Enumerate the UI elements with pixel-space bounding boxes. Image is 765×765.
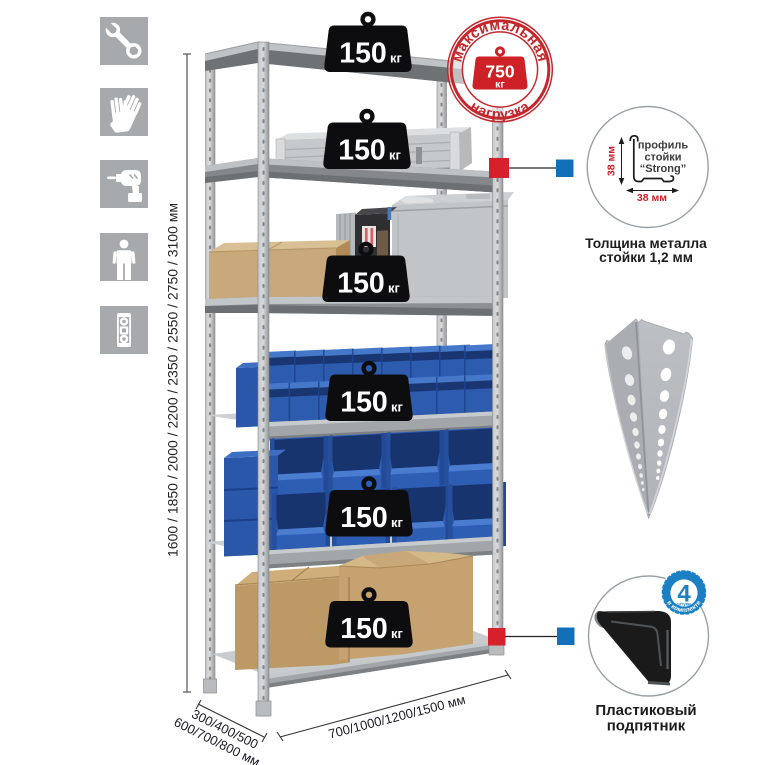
svg-text:38 мм: 38 мм (606, 146, 618, 176)
svg-text:Толщина металла: Толщина металла (585, 236, 707, 251)
svg-text:38 мм: 38 мм (637, 192, 667, 204)
svg-text:профиль: профиль (638, 140, 688, 152)
svg-text:1600 / 1850 / 2000 / 2200 / 23: 1600 / 1850 / 2000 / 2200 / 2350 / 2550 … (165, 203, 181, 557)
svg-text:штуки: штуки (677, 602, 691, 607)
svg-text:подпятник: подпятник (607, 718, 686, 735)
svg-text:стойки: стойки (644, 152, 681, 164)
svg-text:“Strong”: “Strong” (640, 163, 686, 175)
svg-text:кг: кг (495, 79, 505, 91)
svg-text:стойки 1,2 мм: стойки 1,2 мм (599, 250, 693, 265)
svg-text:Пластиковый: Пластиковый (595, 702, 696, 719)
